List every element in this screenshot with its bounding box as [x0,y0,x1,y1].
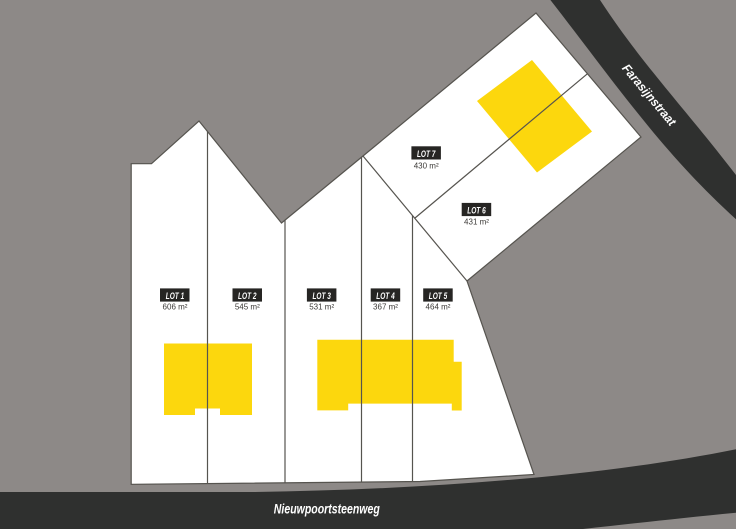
svg-text:367 m²: 367 m² [373,303,398,312]
svg-text:LOT 4: LOT 4 [376,291,395,301]
svg-text:464 m²: 464 m² [426,303,451,312]
svg-text:LOT 3: LOT 3 [312,291,331,301]
svg-text:531 m²: 531 m² [309,303,334,312]
svg-text:Nieuwpoortsteenweg: Nieuwpoortsteenweg [274,501,381,516]
svg-text:LOT 2: LOT 2 [238,291,257,301]
svg-text:431 m²: 431 m² [464,218,489,227]
svg-text:545 m²: 545 m² [235,303,260,312]
svg-text:430 m²: 430 m² [414,162,439,171]
svg-text:LOT 5: LOT 5 [429,291,448,301]
svg-text:LOT 1: LOT 1 [166,291,185,301]
svg-text:LOT 7: LOT 7 [417,149,436,159]
svg-text:606 m²: 606 m² [163,303,188,312]
svg-text:LOT 6: LOT 6 [467,205,486,215]
